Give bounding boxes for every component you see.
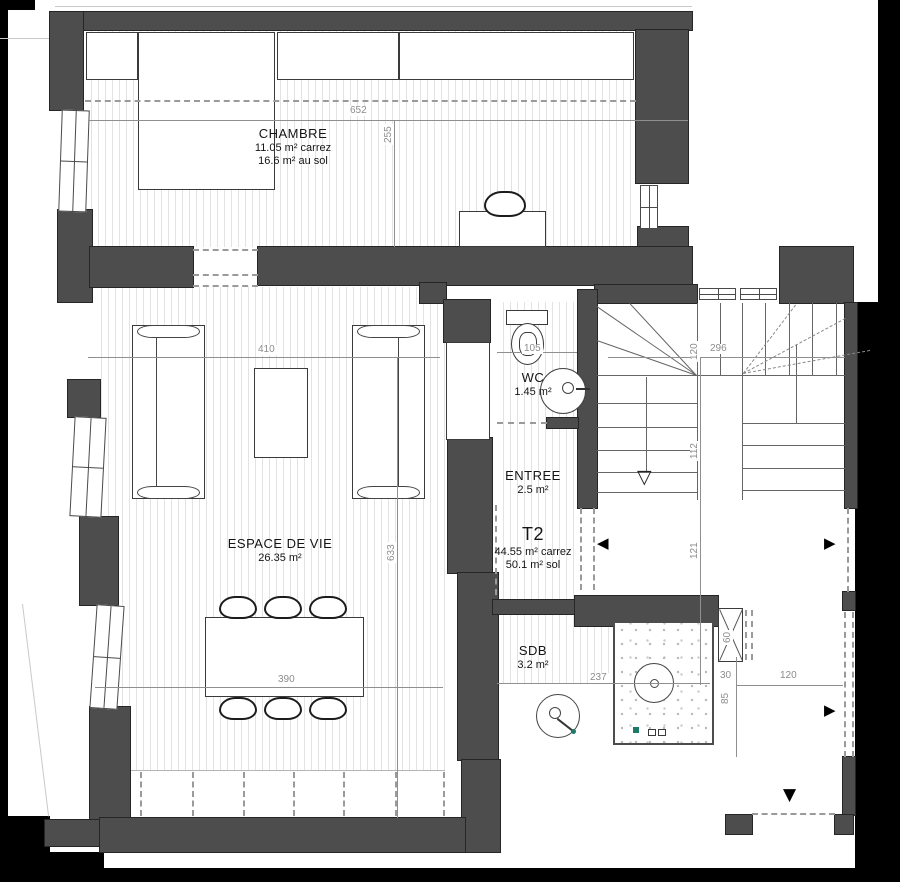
wall-segment [80, 517, 118, 605]
dim-label-85: 85 [721, 691, 731, 706]
doorway-dashes [193, 285, 258, 287]
window-icon [58, 110, 90, 213]
duct-dashes [745, 610, 747, 660]
low-ceiling-dashes [293, 772, 295, 816]
stair-tread [742, 445, 845, 446]
room-label-sdb: SDB 3.2 m² [495, 643, 571, 671]
dim-line [700, 357, 701, 685]
low-ceiling-dashes [140, 772, 142, 816]
room-label-entree: ENTREE 2.5 m² [490, 468, 576, 496]
chair [484, 191, 526, 217]
fixture-icon [648, 729, 656, 736]
dim-label-652: 652 [348, 106, 369, 116]
dim-label-255: 255 [384, 124, 394, 145]
low-ceiling-dashes [243, 772, 245, 816]
dim-label-296: 296 [708, 344, 729, 354]
dim-label-120-stair: 120 [690, 341, 700, 362]
dining-table [205, 617, 364, 697]
window-icon [69, 416, 106, 518]
dim-label-237: 237 [588, 673, 609, 683]
room-label-t2: T2 44.55 m² carrez 50.1 m² sol [481, 524, 585, 571]
chair [219, 697, 257, 720]
height-limit-line [85, 100, 636, 102]
floor-plan: ▽ ◀ ▶ ▶ ▼ 652 255 410 633 390 105 296 12… [0, 0, 900, 882]
stair-tread [597, 375, 845, 376]
closet [399, 32, 634, 80]
window-icon [740, 288, 777, 300]
wall-segment [845, 303, 857, 508]
chair [219, 596, 257, 619]
dim-line [88, 120, 688, 121]
stair-tread [836, 303, 837, 375]
room-name: CHAMBRE [203, 126, 383, 141]
closet [277, 32, 399, 80]
wall-segment [636, 30, 688, 183]
sofa-line [156, 328, 157, 496]
coffee-table [254, 368, 308, 458]
arrow-down-icon: ▼ [783, 787, 796, 804]
room-area: 26.35 m² [190, 552, 370, 564]
opening-dashes [847, 508, 849, 592]
wall-segment [90, 707, 130, 822]
dim-label-121: 121 [690, 540, 700, 561]
wall-segment [50, 12, 83, 110]
room-name: ESPACE DE VIE [190, 536, 370, 551]
wall-segment [420, 283, 446, 303]
sofa-arm [137, 325, 200, 338]
stair-tread [720, 303, 721, 375]
corridor-opening-dashes [844, 612, 846, 757]
dim-label-410: 410 [256, 345, 277, 355]
entry-opening-dashes [593, 508, 595, 590]
wall-segment [835, 815, 853, 834]
wc-boundary-dashes [497, 422, 547, 424]
wall-segment [68, 380, 100, 417]
doorway-dashes [193, 274, 258, 276]
low-ceiling-dashes [343, 772, 345, 816]
arrow-right-icon: ▶ [824, 536, 836, 551]
sofa-line [398, 328, 399, 496]
room-name: SDB [495, 643, 571, 658]
chair [309, 596, 347, 619]
wall-segment [843, 592, 855, 610]
wall-segment [726, 815, 752, 834]
closet [86, 32, 138, 80]
room-area: 44.55 m² carrez [481, 546, 585, 558]
room-area: 11.05 m² carrez [203, 142, 383, 154]
canvas-corner [46, 852, 104, 882]
stair-walk-line [646, 377, 647, 473]
door-panel [446, 342, 490, 440]
canvas-corner [0, 816, 50, 882]
room-area: 50.1 m² sol [481, 559, 585, 571]
stair-tread [812, 303, 813, 375]
stair-tread [742, 490, 845, 491]
chair [309, 697, 347, 720]
dim-label-30: 30 [718, 671, 733, 681]
sofa-arm [357, 325, 420, 338]
dim-line [95, 687, 443, 688]
stair-tread [742, 468, 845, 469]
wall-segment [780, 247, 853, 303]
room-area: 2.5 m² [490, 484, 576, 496]
wall-segment [444, 300, 490, 342]
dim-label-120-corridor: 120 [778, 671, 799, 681]
stair-tread [742, 423, 845, 424]
wall-segment [55, 12, 692, 30]
chair [264, 697, 302, 720]
stair-tread [597, 427, 697, 428]
corridor-end-dashes [752, 813, 835, 815]
room-name: ENTREE [490, 468, 576, 483]
room-label-chambre: CHAMBRE 11.05 m² carrez 16.6 m² au sol [203, 126, 383, 167]
dim-label-390: 390 [276, 675, 297, 685]
wall-segment [595, 285, 697, 303]
dim-line [397, 357, 398, 818]
room-label-espace-de-vie: ESPACE DE VIE 26.35 m² [190, 536, 370, 564]
wall-segment [638, 227, 688, 249]
room-area: 1.45 m² [495, 386, 571, 398]
dim-label-633: 633 [387, 542, 397, 563]
dim-line [736, 657, 737, 757]
stair-stringer [742, 303, 743, 500]
wall-segment [258, 247, 692, 285]
wall-segment [45, 820, 102, 846]
stair-stringer [697, 303, 698, 500]
sofa-arm [137, 486, 200, 499]
stair-tread [597, 403, 697, 404]
chair [264, 596, 302, 619]
stair-tread [765, 303, 766, 375]
dim-label-60: 60 [723, 630, 733, 645]
low-ceiling-dashes [192, 772, 194, 816]
room-label-wc: WC 1.45 m² [495, 370, 571, 398]
room-area: 16.6 m² au sol [203, 155, 383, 167]
window-icon [640, 185, 658, 229]
wall-segment [462, 760, 500, 852]
dim-label-112: 112 [690, 441, 700, 461]
wall-segment [843, 757, 855, 815]
stair-tread [597, 450, 697, 451]
dim-line [497, 683, 710, 684]
room-name: T2 [481, 524, 585, 545]
faucet-icon [633, 727, 639, 733]
stair-tread [597, 492, 697, 493]
sofa-arm [357, 486, 420, 499]
wall-segment [547, 418, 578, 428]
duct-dashes [751, 610, 753, 660]
corridor-opening-dashes [852, 612, 854, 757]
wall-segment [100, 818, 465, 852]
wall-segment [493, 600, 577, 614]
dim-line [88, 357, 440, 358]
dim-line [737, 685, 843, 686]
sofa [352, 325, 425, 499]
window-icon [699, 288, 736, 300]
wall-segment [458, 573, 498, 760]
arrow-left-icon: ◀ [597, 536, 609, 551]
dim-label-105: 105 [522, 344, 543, 354]
wall-segment [58, 210, 92, 302]
dim-line [608, 357, 845, 358]
doorway-dashes [193, 249, 258, 251]
sheet-edge-line [55, 6, 692, 7]
room-name: WC [495, 370, 571, 385]
fixture-icon [658, 729, 666, 736]
stair-down-arrow-icon: ▽ [637, 468, 652, 487]
low-ceiling-dashes [443, 772, 445, 816]
sofa [132, 325, 205, 499]
dim-line [394, 120, 395, 247]
room-area: 3.2 m² [495, 659, 571, 671]
wall-segment [90, 247, 193, 287]
arrow-right-icon: ▶ [824, 703, 836, 718]
